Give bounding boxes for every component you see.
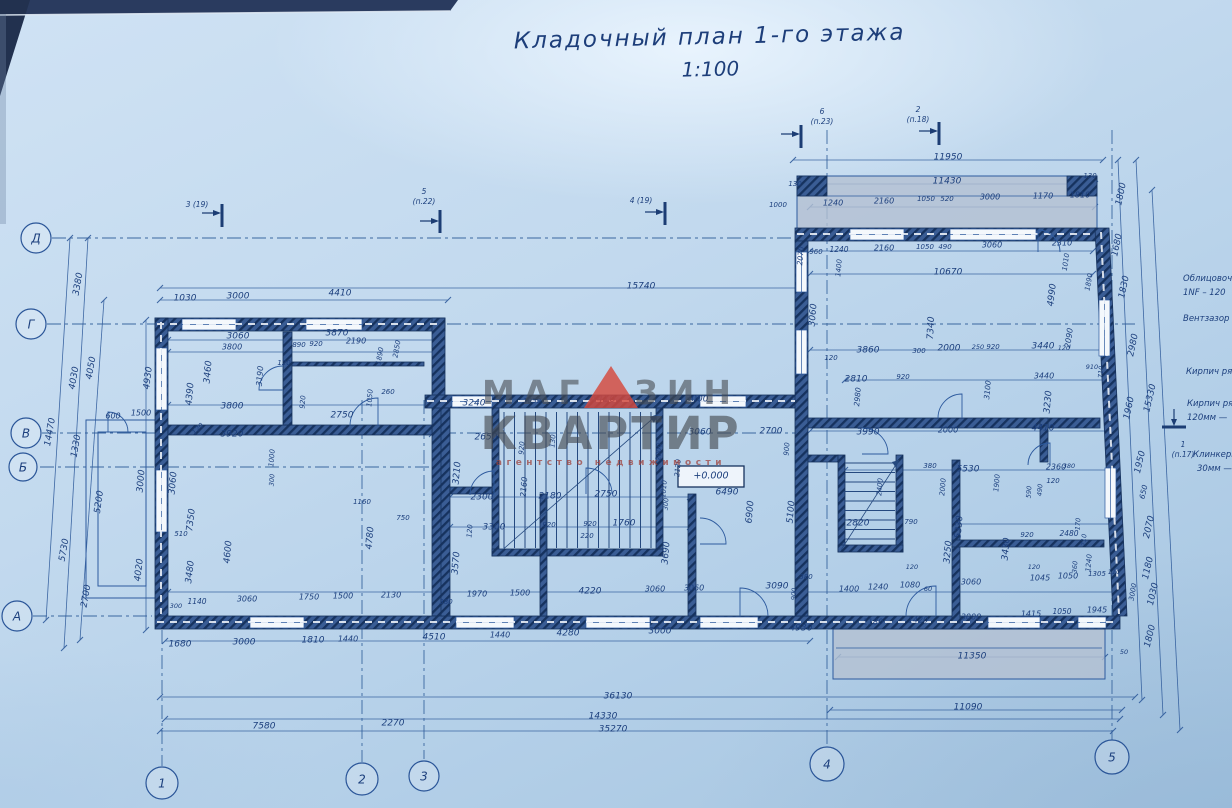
dimension-label: 3210 bbox=[452, 461, 464, 485]
dimension-label: 130 bbox=[788, 180, 802, 188]
dimension-label: 2130 bbox=[381, 591, 401, 600]
dimension-label: 2310 bbox=[1052, 239, 1072, 248]
dimension-label: 1160 bbox=[353, 498, 371, 506]
legend-item: Облицовоч bbox=[1183, 274, 1232, 284]
dimension-label: 4410 bbox=[329, 289, 352, 299]
axis-label: 3 bbox=[420, 770, 428, 784]
dimension-label: 2070 bbox=[795, 246, 806, 266]
dimension-label: 3300 bbox=[483, 523, 506, 533]
axis-label: А bbox=[12, 610, 21, 624]
dimension-label: 50 bbox=[1120, 648, 1128, 656]
dimension-label: 2000 bbox=[938, 426, 958, 435]
dimension-label: 920 bbox=[986, 343, 1000, 351]
dimension-label: 1830 bbox=[1117, 275, 1132, 300]
dimension-label: 120 bbox=[1046, 477, 1060, 485]
dimension-label: 2700 bbox=[80, 584, 94, 609]
dimension-label: 2000 bbox=[938, 477, 948, 496]
dimension-label: 1400 bbox=[839, 585, 859, 594]
dimension-label: 36130 bbox=[604, 692, 633, 702]
dimension-label: 4390 bbox=[185, 382, 197, 406]
dimension-label: 3800 bbox=[221, 402, 244, 412]
dimension-label: 120 bbox=[906, 563, 918, 571]
dimension-label: 1900 bbox=[992, 473, 1002, 492]
dimension-label: 4280 bbox=[557, 629, 580, 639]
legend-item: 30мм — bbox=[1197, 464, 1232, 474]
dimension-label: 300 bbox=[661, 497, 670, 510]
axis-label: Б bbox=[19, 461, 27, 475]
dimension-label: 2650 bbox=[475, 433, 498, 443]
dimension-label: 3060 bbox=[168, 471, 180, 495]
dimension-label: 4220 bbox=[579, 587, 602, 597]
dimension-label: 380 bbox=[799, 573, 813, 581]
dimension-label: 3090 bbox=[766, 582, 789, 592]
dimension-label: 3460 bbox=[203, 360, 215, 384]
dimension-label: 3060 bbox=[684, 584, 704, 593]
dimension-label: 3250 bbox=[943, 540, 955, 564]
dimension-label: 1030 bbox=[174, 294, 197, 304]
dimension-label: 130 bbox=[1083, 172, 1097, 180]
dimension-label: 1030 bbox=[1146, 582, 1161, 607]
dimension-label: 1400 bbox=[834, 258, 844, 277]
dimension-label: 1680 bbox=[169, 640, 192, 650]
axis-label: Д bbox=[30, 232, 40, 246]
dimension-label: 2070 bbox=[1142, 515, 1157, 540]
dimension-label: 920 bbox=[298, 394, 307, 409]
blueprint-photo: 1030300044101574030603870380089092021901… bbox=[0, 0, 1232, 808]
dimension-label: 4930 bbox=[142, 366, 155, 390]
section-marker-label: 6 bbox=[820, 107, 825, 116]
dimension-label: 360 bbox=[1070, 560, 1079, 573]
dimension-label: 4780 bbox=[365, 526, 377, 550]
dimension-label: 3000 bbox=[1128, 582, 1139, 601]
section-marker-label: 4 (19) bbox=[630, 196, 653, 205]
axis-label: 2 bbox=[358, 773, 366, 787]
dimension-label: 7350 bbox=[185, 508, 198, 532]
dimension-label: 1000 bbox=[769, 201, 787, 209]
dimension-label: 6900 bbox=[745, 500, 757, 524]
dimension-label: 4930 bbox=[790, 624, 813, 634]
dimension-label: 110 bbox=[1108, 568, 1120, 576]
dimension-label: 490 bbox=[938, 243, 952, 251]
photo-edge bbox=[0, 0, 458, 224]
dimension-label: 300 bbox=[912, 347, 926, 355]
dimension-label: 3100 bbox=[982, 380, 993, 400]
dimension-label: 3430 bbox=[1001, 537, 1013, 561]
section-marker-label: 1 bbox=[1181, 440, 1186, 449]
section-marker-label: 3 (19) bbox=[186, 200, 209, 209]
dimension-label: 3380 bbox=[72, 272, 86, 297]
dimension-label: 15330 bbox=[1142, 383, 1158, 413]
dimension-label: 1750 bbox=[299, 593, 319, 602]
dimension-label: 14470 bbox=[43, 417, 58, 447]
dimension-label: 300 bbox=[267, 473, 276, 486]
dimension-label: 11430 bbox=[933, 177, 962, 187]
dimension-label: 6490 bbox=[716, 488, 739, 498]
dimension-label: 120 bbox=[277, 359, 291, 367]
dimension-label: 750 bbox=[396, 514, 410, 522]
dimension-label: 650 bbox=[1138, 484, 1150, 500]
dimension-label: 3920 bbox=[221, 430, 244, 440]
dimension-label: 890 bbox=[292, 341, 306, 349]
axis-label: 5 bbox=[1108, 751, 1116, 765]
dimension-label: 2750 bbox=[595, 490, 618, 500]
dimension-label: 4050 bbox=[85, 356, 99, 381]
legend-item: 1NF – 120 bbox=[1183, 288, 1226, 298]
dimension-label: 10670 bbox=[934, 268, 963, 278]
dimension-label: 590 bbox=[1024, 485, 1033, 498]
dimension-label: 15740 bbox=[627, 282, 656, 292]
dimension-label: 3060 bbox=[961, 578, 981, 587]
dimension-label: 120 bbox=[824, 354, 838, 362]
dimension-label: 3230 bbox=[1043, 390, 1055, 414]
dimension-label: 4020 bbox=[133, 558, 146, 582]
dimension-label: 2000 bbox=[938, 344, 961, 354]
dimension-label: 1420 bbox=[908, 616, 928, 625]
dimension-label: 2700 bbox=[760, 427, 783, 437]
dimension-label: 14330 bbox=[589, 712, 618, 722]
dimension-label: 380 bbox=[439, 598, 453, 606]
dimension-label: 710 bbox=[1079, 533, 1088, 546]
dimension-label: 790 bbox=[904, 518, 918, 526]
dimension-label: 380 bbox=[1063, 462, 1075, 470]
dimension-label: 3000 bbox=[649, 627, 672, 637]
dimension-label: 2980 bbox=[852, 387, 863, 407]
axis-label: 1 bbox=[158, 777, 166, 791]
dimension-label: 2750 bbox=[331, 411, 354, 421]
dimension-label: 1330 bbox=[70, 434, 84, 459]
dimension-label: 170 bbox=[1073, 517, 1082, 530]
dimension-label: 3480 bbox=[184, 560, 197, 584]
dimension-label: 1800 bbox=[1114, 182, 1129, 207]
dimension-label: 2270 bbox=[382, 719, 405, 729]
dimension-label: 120 bbox=[1028, 563, 1040, 571]
dimension-label: 1080 bbox=[900, 581, 920, 590]
dimension-label: 3570 bbox=[451, 551, 463, 575]
dimension-label: 3190 bbox=[255, 365, 266, 386]
dimension-label: 1415 bbox=[1021, 610, 1041, 619]
dimension-label: 4990 bbox=[1046, 283, 1059, 307]
dimension-label: 1810 bbox=[1070, 191, 1090, 200]
dimension-label: 4410 bbox=[590, 394, 615, 405]
dimension-label: 510 bbox=[174, 530, 188, 538]
dimension-label: 920 bbox=[583, 520, 597, 528]
dimension-label: 710 bbox=[1096, 365, 1105, 378]
dimension-label: 1970 bbox=[467, 590, 487, 599]
dimension-label: 250 bbox=[972, 343, 984, 351]
dimension-label: 4600 bbox=[223, 540, 235, 564]
dimension-label: 3060 bbox=[689, 428, 712, 438]
section-marker-label: (п.23) bbox=[811, 117, 834, 126]
dimension-label: 7340 bbox=[926, 316, 937, 340]
dimension-label: 4410 bbox=[1032, 424, 1055, 434]
section-marker-label: (п.17) bbox=[1172, 450, 1195, 459]
dimension-label: 920 bbox=[896, 373, 910, 381]
dimension-label: 120 bbox=[465, 523, 474, 538]
dimension-label: 380 bbox=[923, 462, 937, 470]
dimension-label: 3000 bbox=[227, 292, 250, 302]
dimension-label: 1810 bbox=[302, 636, 325, 646]
dimension-label: 7580 bbox=[253, 722, 276, 732]
dimension-label: 3440 bbox=[1032, 342, 1055, 352]
dimension-label: 960 bbox=[809, 248, 823, 256]
dimension-label: 35270 bbox=[599, 725, 628, 735]
dimension-label: 920 bbox=[1020, 531, 1034, 539]
dimension-label: 1440 bbox=[490, 631, 510, 640]
dimension-label: 3000 bbox=[961, 613, 981, 622]
dimension-label: 920 bbox=[542, 521, 556, 529]
dimension-label: 2300 bbox=[471, 493, 494, 503]
section-marker-label: 5 bbox=[422, 187, 427, 196]
dimension-label: 1440 bbox=[338, 635, 358, 644]
page-title: Кладочный план 1-го этажа 1:100 bbox=[454, 18, 965, 87]
legend-item: Кирпич ря bbox=[1186, 367, 1232, 377]
dimension-label: 3800 bbox=[222, 343, 242, 352]
dimension-label: 3000 bbox=[980, 193, 1000, 202]
dimension-label: 3060 bbox=[645, 585, 665, 594]
dimension-label: 11350 bbox=[958, 652, 987, 662]
legend-item: Клинкерн bbox=[1193, 450, 1232, 460]
dimension-label: 520 bbox=[940, 195, 954, 203]
legend-item: Кирпич ря bbox=[1187, 399, 1232, 409]
dimension-label: 3240 bbox=[463, 399, 486, 409]
dimension-label: 2160 bbox=[519, 476, 530, 497]
legend-item: Вентзазор bbox=[1183, 314, 1229, 324]
dimension-label: 2810 bbox=[845, 375, 868, 385]
dimension-label: 1960 bbox=[1122, 396, 1137, 421]
dimension-label: 2190 bbox=[346, 337, 366, 346]
dimension-label: 1010 bbox=[659, 479, 669, 498]
dimension-label: 4510 bbox=[423, 633, 446, 643]
dimension-label: 1950 bbox=[1133, 450, 1148, 475]
dimension-label: 2400 bbox=[875, 477, 885, 496]
dimension-label: 1050 bbox=[365, 388, 375, 407]
dimension-label: 2820 bbox=[847, 519, 870, 529]
dimension-label: 900 bbox=[782, 441, 791, 456]
dimension-label: 11090 bbox=[954, 703, 983, 713]
dimension-label: 60 bbox=[924, 585, 932, 593]
dimension-label: 5100 bbox=[786, 500, 798, 524]
dimension-label: 2000 bbox=[654, 442, 664, 461]
dimension-label: 1180 bbox=[1141, 556, 1156, 581]
dimension-label: 120 bbox=[1058, 344, 1070, 352]
dimension-label: 3060 bbox=[982, 241, 1002, 250]
dimension-label: 300 bbox=[170, 602, 182, 610]
dimension-label: 1240 bbox=[823, 199, 843, 208]
floor-plan-drawing: 1030300044101574030603870380089092021901… bbox=[0, 0, 1232, 808]
dimension-label: 1045 bbox=[1030, 574, 1050, 583]
dimension-label: 3440 bbox=[1034, 372, 1054, 381]
dimension-label: 2980 bbox=[1126, 333, 1141, 358]
axis-label: 4 bbox=[823, 758, 831, 772]
legend-item: 120мм — bbox=[1187, 413, 1228, 423]
dimension-label: 1050 bbox=[916, 243, 934, 251]
dimension-label: 600 bbox=[105, 412, 120, 421]
dimension-label: 3860 bbox=[857, 346, 880, 356]
dimension-label: 1050 bbox=[917, 195, 935, 203]
dimension-label: 1500 bbox=[131, 409, 151, 418]
dimension-label: 3000 bbox=[136, 469, 148, 493]
dimension-label: 5330 bbox=[954, 515, 966, 539]
dimension-label: 1000 bbox=[267, 448, 277, 467]
dimension-label: 1170 bbox=[1033, 192, 1053, 201]
dimension-label: 900 bbox=[789, 587, 798, 600]
dimension-label: +0.000 bbox=[693, 471, 728, 482]
dimension-label: 2850 bbox=[392, 339, 403, 358]
dimension-label: 11950 bbox=[934, 153, 963, 163]
dimension-label: 5530 bbox=[957, 465, 980, 475]
dimension-label: 1760 bbox=[613, 519, 636, 529]
dimension-label: 1240 bbox=[829, 245, 848, 254]
dimension-label: 920 bbox=[517, 440, 526, 455]
dimension-label: 1890 bbox=[1084, 272, 1095, 291]
dimension-label: 2160 bbox=[874, 197, 894, 206]
dimension-label: 3000 bbox=[686, 395, 709, 405]
dimension-label: 1240 bbox=[868, 583, 888, 592]
axis-label: В bbox=[22, 427, 30, 441]
dimension-label: 2160 bbox=[874, 244, 894, 253]
dimension-label: 130 bbox=[548, 433, 557, 448]
section-marker-label: (п.22) bbox=[413, 197, 436, 206]
dimension-label: 3060 bbox=[808, 303, 820, 327]
section-marker-label: 2 bbox=[916, 105, 921, 114]
dimension-label: 1500 bbox=[333, 592, 353, 601]
dimension-label: 2120 bbox=[673, 458, 683, 477]
dimension-label: 3990 bbox=[857, 428, 880, 438]
section-marker-label: (п.18) bbox=[907, 115, 930, 124]
legend-labels: Облицовоч1NF – 120ВентзазорКирпич ряКирп… bbox=[1183, 274, 1232, 474]
dimension-label: 1050 bbox=[523, 397, 541, 405]
dimension-label: 220 bbox=[580, 532, 594, 540]
dimension-label: 1500 bbox=[510, 589, 530, 598]
dimension-label: 3000 bbox=[233, 638, 256, 648]
dimension-label: 1800 bbox=[1143, 624, 1158, 649]
dimension-label: 3060 bbox=[227, 332, 250, 342]
dimension-label: 2180 bbox=[539, 492, 562, 502]
dimension-label: 1945 bbox=[1087, 606, 1107, 615]
dimension-label: 1180 bbox=[863, 618, 883, 627]
dimension-label: 490 bbox=[1035, 483, 1044, 496]
dimension-label: 3060 bbox=[237, 595, 257, 604]
dimension-label: 1240 bbox=[1084, 553, 1094, 572]
dimension-label: 1010 bbox=[1061, 252, 1071, 271]
dimension-label: 1140 bbox=[187, 597, 206, 606]
dimension-label: 5200 bbox=[93, 490, 106, 514]
dimension-label: 3690 bbox=[661, 541, 673, 565]
section-flags-layer bbox=[202, 122, 1186, 427]
dimension-label: 920 bbox=[309, 340, 323, 348]
dimension-label: 260 bbox=[381, 388, 395, 396]
dimension-label: 1050 bbox=[1052, 607, 1071, 616]
